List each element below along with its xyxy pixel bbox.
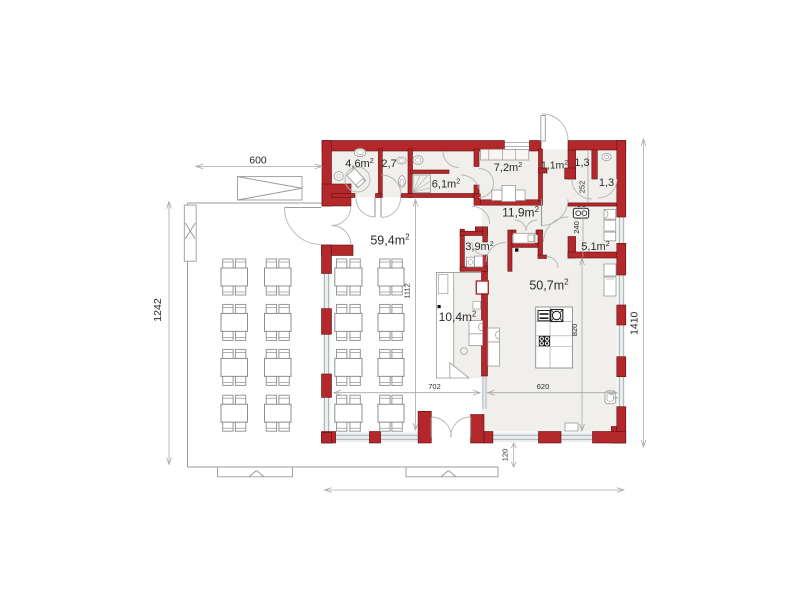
svg-text:7,2m2: 7,2m2 [494, 160, 522, 174]
svg-text:4,6m2: 4,6m2 [345, 156, 373, 170]
svg-text:3,9m2: 3,9m2 [465, 239, 493, 253]
svg-text:10,4m2: 10,4m2 [439, 309, 477, 324]
svg-text:240: 240 [572, 221, 581, 234]
svg-text:600: 600 [249, 155, 267, 167]
svg-text:1,1m2: 1,1m2 [541, 160, 568, 172]
svg-text:820: 820 [570, 324, 579, 337]
svg-text:5,1m2: 5,1m2 [581, 239, 609, 253]
svg-text:1242: 1242 [152, 298, 164, 322]
svg-text:252: 252 [578, 181, 587, 194]
svg-text:11,9m2: 11,9m2 [502, 205, 539, 220]
svg-text:620: 620 [537, 382, 550, 391]
svg-text:1,3: 1,3 [574, 157, 589, 169]
svg-text:1112: 1112 [403, 283, 412, 299]
svg-text:1,3: 1,3 [599, 177, 614, 189]
svg-text:120: 120 [501, 449, 510, 462]
svg-text:1410: 1410 [628, 311, 640, 335]
svg-text:2,7: 2,7 [381, 158, 396, 170]
svg-text:6,1m2: 6,1m2 [432, 176, 460, 190]
svg-text:702: 702 [428, 382, 441, 391]
svg-text:50,7m2: 50,7m2 [529, 278, 569, 293]
svg-text:59,4m2: 59,4m2 [370, 233, 410, 248]
